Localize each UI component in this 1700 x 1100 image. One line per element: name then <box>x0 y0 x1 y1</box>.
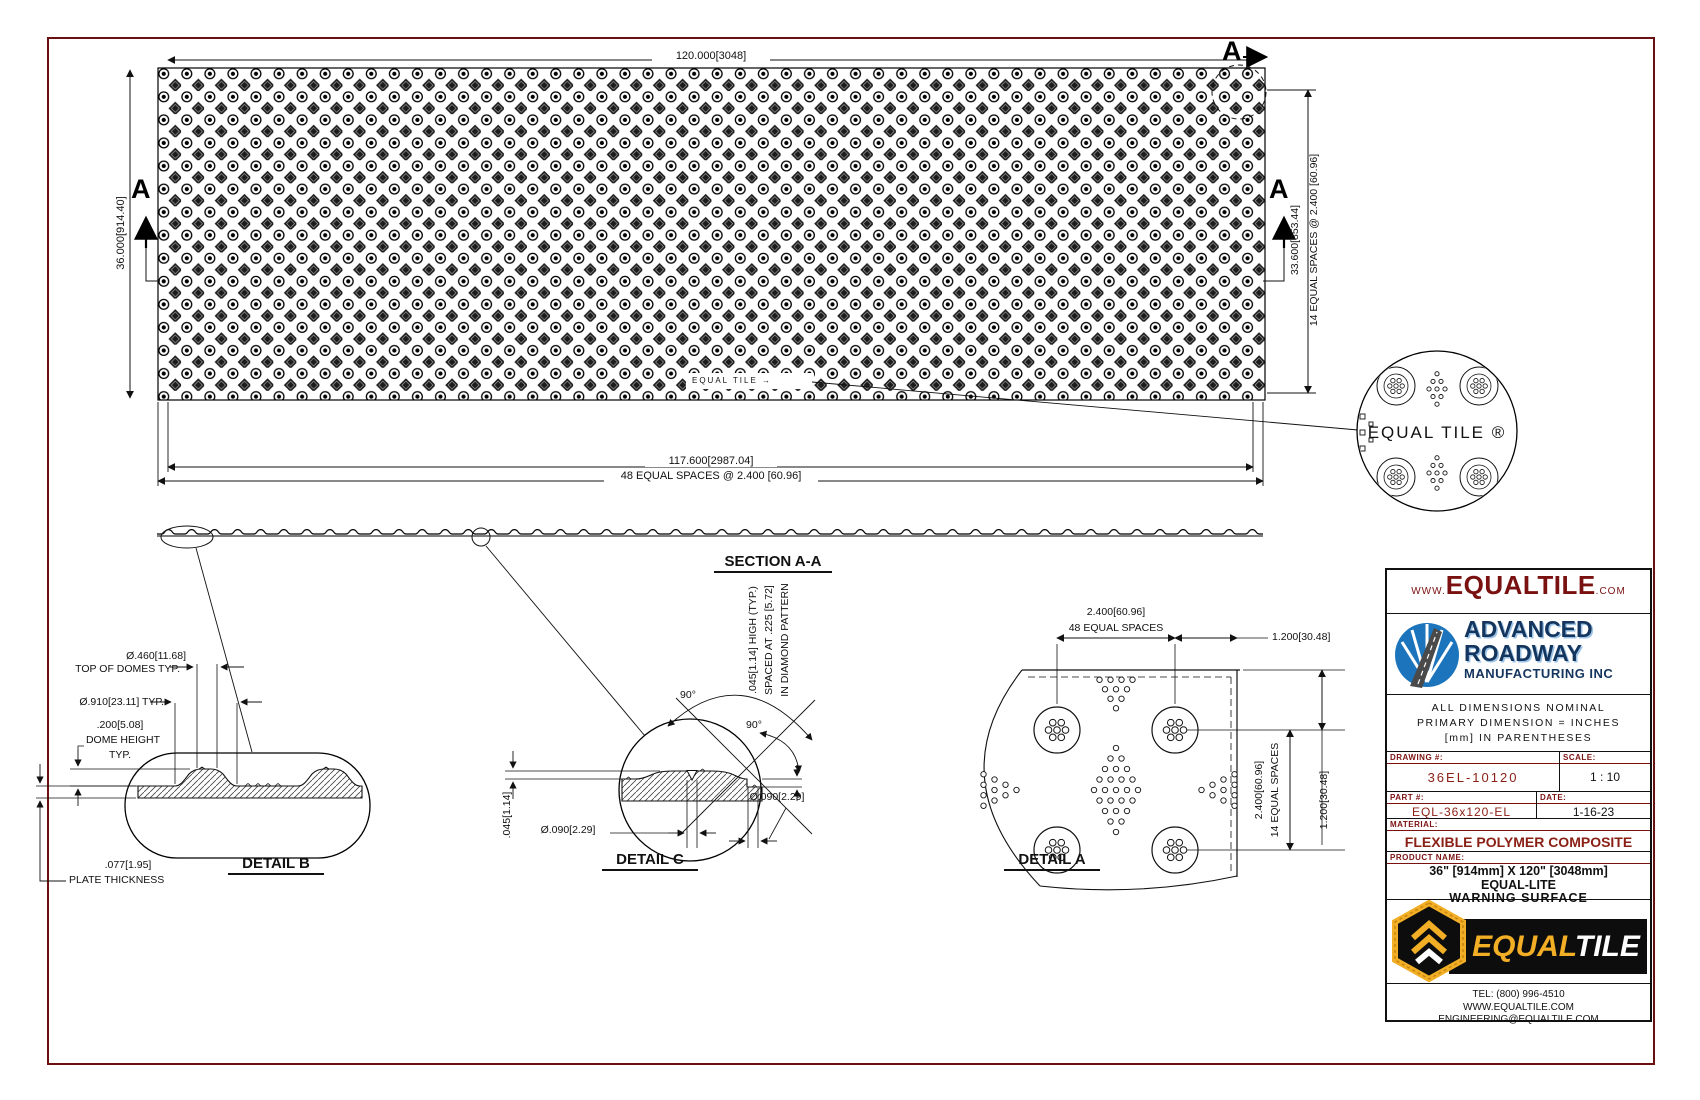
detail-c-angle-2: 90° <box>736 719 772 731</box>
date-label: DATE: <box>1537 792 1650 804</box>
section-marker-a-right: A <box>1269 174 1289 205</box>
detail-b-plate-note: PLATE THICKNESS <box>69 874 199 886</box>
company-row: ADVANCED ROADWAY MANUFACTURING INC <box>1387 614 1650 695</box>
website-name: EQUALTILE <box>1446 570 1596 601</box>
dim-right-height: 33.600[853.44] <box>1289 184 1301 296</box>
detail-c-groove-dim-1: Ø.090[2.29] <box>527 824 609 836</box>
detail-b-label: DETAIL B <box>228 855 324 875</box>
contact-email: ENGINEERING@EQUALTILE.COM <box>1387 1014 1650 1027</box>
detail-b-dome-height: .200[5.08] <box>80 719 160 731</box>
detail-c-note-2: SPACED AT .225 [5.72] <box>763 570 775 710</box>
detail-c-note-3: IN DIAMOND PATTERN <box>779 570 791 710</box>
detail-b-plate-dim: .077[1.95] <box>88 859 168 871</box>
logo-equal-text: EQUAL <box>1472 930 1575 963</box>
detail-a-dot-diamonds <box>981 677 1237 835</box>
product-label: PRODUCT NAME: <box>1387 852 1650 864</box>
note-line-3: [mm] IN PARENTHESES <box>1387 731 1650 746</box>
company-line3: MANUFACTURING INC <box>1464 665 1613 683</box>
contact-web: WWW.EQUALTILE.COM <box>1387 1002 1650 1015</box>
dim-bottom-spaces: 48 EQUAL SPACES @ 2.400 [60.96] <box>604 470 818 482</box>
note-line-2: PRIMARY DIMENSION = INCHES <box>1387 716 1650 731</box>
section-marker-a-left: A <box>131 174 151 205</box>
part-number-row: PART #: EQL-36x120-EL DATE: 1-16-23 <box>1387 792 1650 819</box>
detail-a-top-dim-1: 2.400[60.96] <box>1066 606 1166 618</box>
notes-row: ALL DIMENSIONS NOMINAL PRIMARY DIMENSION… <box>1387 695 1650 752</box>
detail-a-right-dim-2: 14 EQUAL SPACES <box>1269 730 1281 850</box>
section-strip <box>157 527 1263 539</box>
equaltile-hexagon-icon <box>1389 900 1469 984</box>
dim-right-spaces: 14 EQUAL SPACES @ 2.400 [60.96] <box>1308 134 1320 346</box>
detail-c-angle-1: 90° <box>670 689 706 701</box>
part-number-label: PART #: <box>1387 792 1536 804</box>
contact-row: TEL: (800) 996-4510 WWW.EQUALTILE.COM EN… <box>1387 984 1650 1024</box>
dim-bottom-width: 117.600[2987.04] <box>645 455 777 467</box>
equaltile-logo-row: EQUALTILE <box>1387 900 1650 984</box>
company-line2: ROADWAY <box>1464 641 1613 665</box>
contact-tel: TEL: (800) 996-4510 <box>1387 989 1650 1002</box>
date-value: 1-16-23 <box>1537 804 1650 819</box>
website-suffix: .COM <box>1596 586 1626 597</box>
part-number-value: EQL-36x120-EL <box>1387 804 1536 819</box>
drawing-number-row: DRAWING #: 36EL-10120 SCALE: 1 : 10 <box>1387 752 1650 792</box>
detail-a-top-right-dim: 1.200[30.48] <box>1272 631 1362 643</box>
note-line-1: ALL DIMENSIONS NOMINAL <box>1387 701 1650 716</box>
equaltile-logo-banner: EQUALTILE <box>1449 919 1647 974</box>
title-block-website-row: WWW.EQUALTILE.COM <box>1387 570 1650 614</box>
detail-b-dome-base-dia: Ø.910[23.11] TYP. <box>42 696 164 708</box>
title-block: WWW.EQUALTILE.COM ADVANCED ROADWAY MANUF… <box>1385 568 1652 1022</box>
embossed-tile-text: EQUAL TILE → <box>692 376 772 385</box>
detail-b-dome-top-dia: Ø.460[11.68] <box>80 650 186 662</box>
detail-a-right-dim-1: 2.400[60.96] <box>1253 740 1265 840</box>
detail-a-label: DETAIL A <box>1004 851 1100 871</box>
tile-pattern-plan <box>158 68 1265 400</box>
logo-tile-text: TILE <box>1575 930 1640 963</box>
product-line2: EQUAL-LITE <box>1387 879 1650 893</box>
product-row: PRODUCT NAME: 36" [914mm] X 120" [3048mm… <box>1387 852 1650 900</box>
detail-b-dome-height-note1: DOME HEIGHT <box>78 734 168 746</box>
company-line1: ADVANCED <box>1464 617 1613 641</box>
balloon-equal-tile-text: EQUAL TILE ® <box>1367 423 1507 443</box>
section-marker-a-top: A <box>1222 36 1242 67</box>
scale-label: SCALE: <box>1560 752 1650 764</box>
detail-b-dome-height-note2: TYP. <box>90 749 150 761</box>
scale-value: 1 : 10 <box>1560 764 1650 784</box>
detail-a-top-dim-2: 48 EQUAL SPACES <box>1056 622 1176 634</box>
roadway-logo-icon <box>1392 618 1462 692</box>
detail-c-label: DETAIL C <box>602 851 698 871</box>
dim-overall-width: 120.000[3048] <box>652 50 770 62</box>
detail-c-groove-dim-2: Ø.090[2.29] <box>736 791 818 803</box>
website-prefix: WWW. <box>1411 586 1446 597</box>
detail-c-note-1: .045[1.14] HIGH (TYP.) <box>747 570 759 710</box>
material-value: FLEXIBLE POLYMER COMPOSITE <box>1387 831 1650 850</box>
detail-c-height-dim: .045[1.14] <box>501 770 513 860</box>
drawing-number-label: DRAWING #: <box>1387 752 1559 764</box>
material-row: MATERIAL: FLEXIBLE POLYMER COMPOSITE <box>1387 819 1650 852</box>
drawing-number-value: 36EL-10120 <box>1387 764 1559 785</box>
detail-a-right-dim-3: 1.200[30.48] <box>1318 750 1330 850</box>
material-label: MATERIAL: <box>1387 819 1650 831</box>
dim-overall-height: 36.000[914.40] <box>115 173 127 293</box>
product-line1: 36" [914mm] X 120" [3048mm] <box>1387 864 1650 879</box>
detail-b-dome-top-note: TOP OF DOMES TYP. <box>48 663 180 675</box>
